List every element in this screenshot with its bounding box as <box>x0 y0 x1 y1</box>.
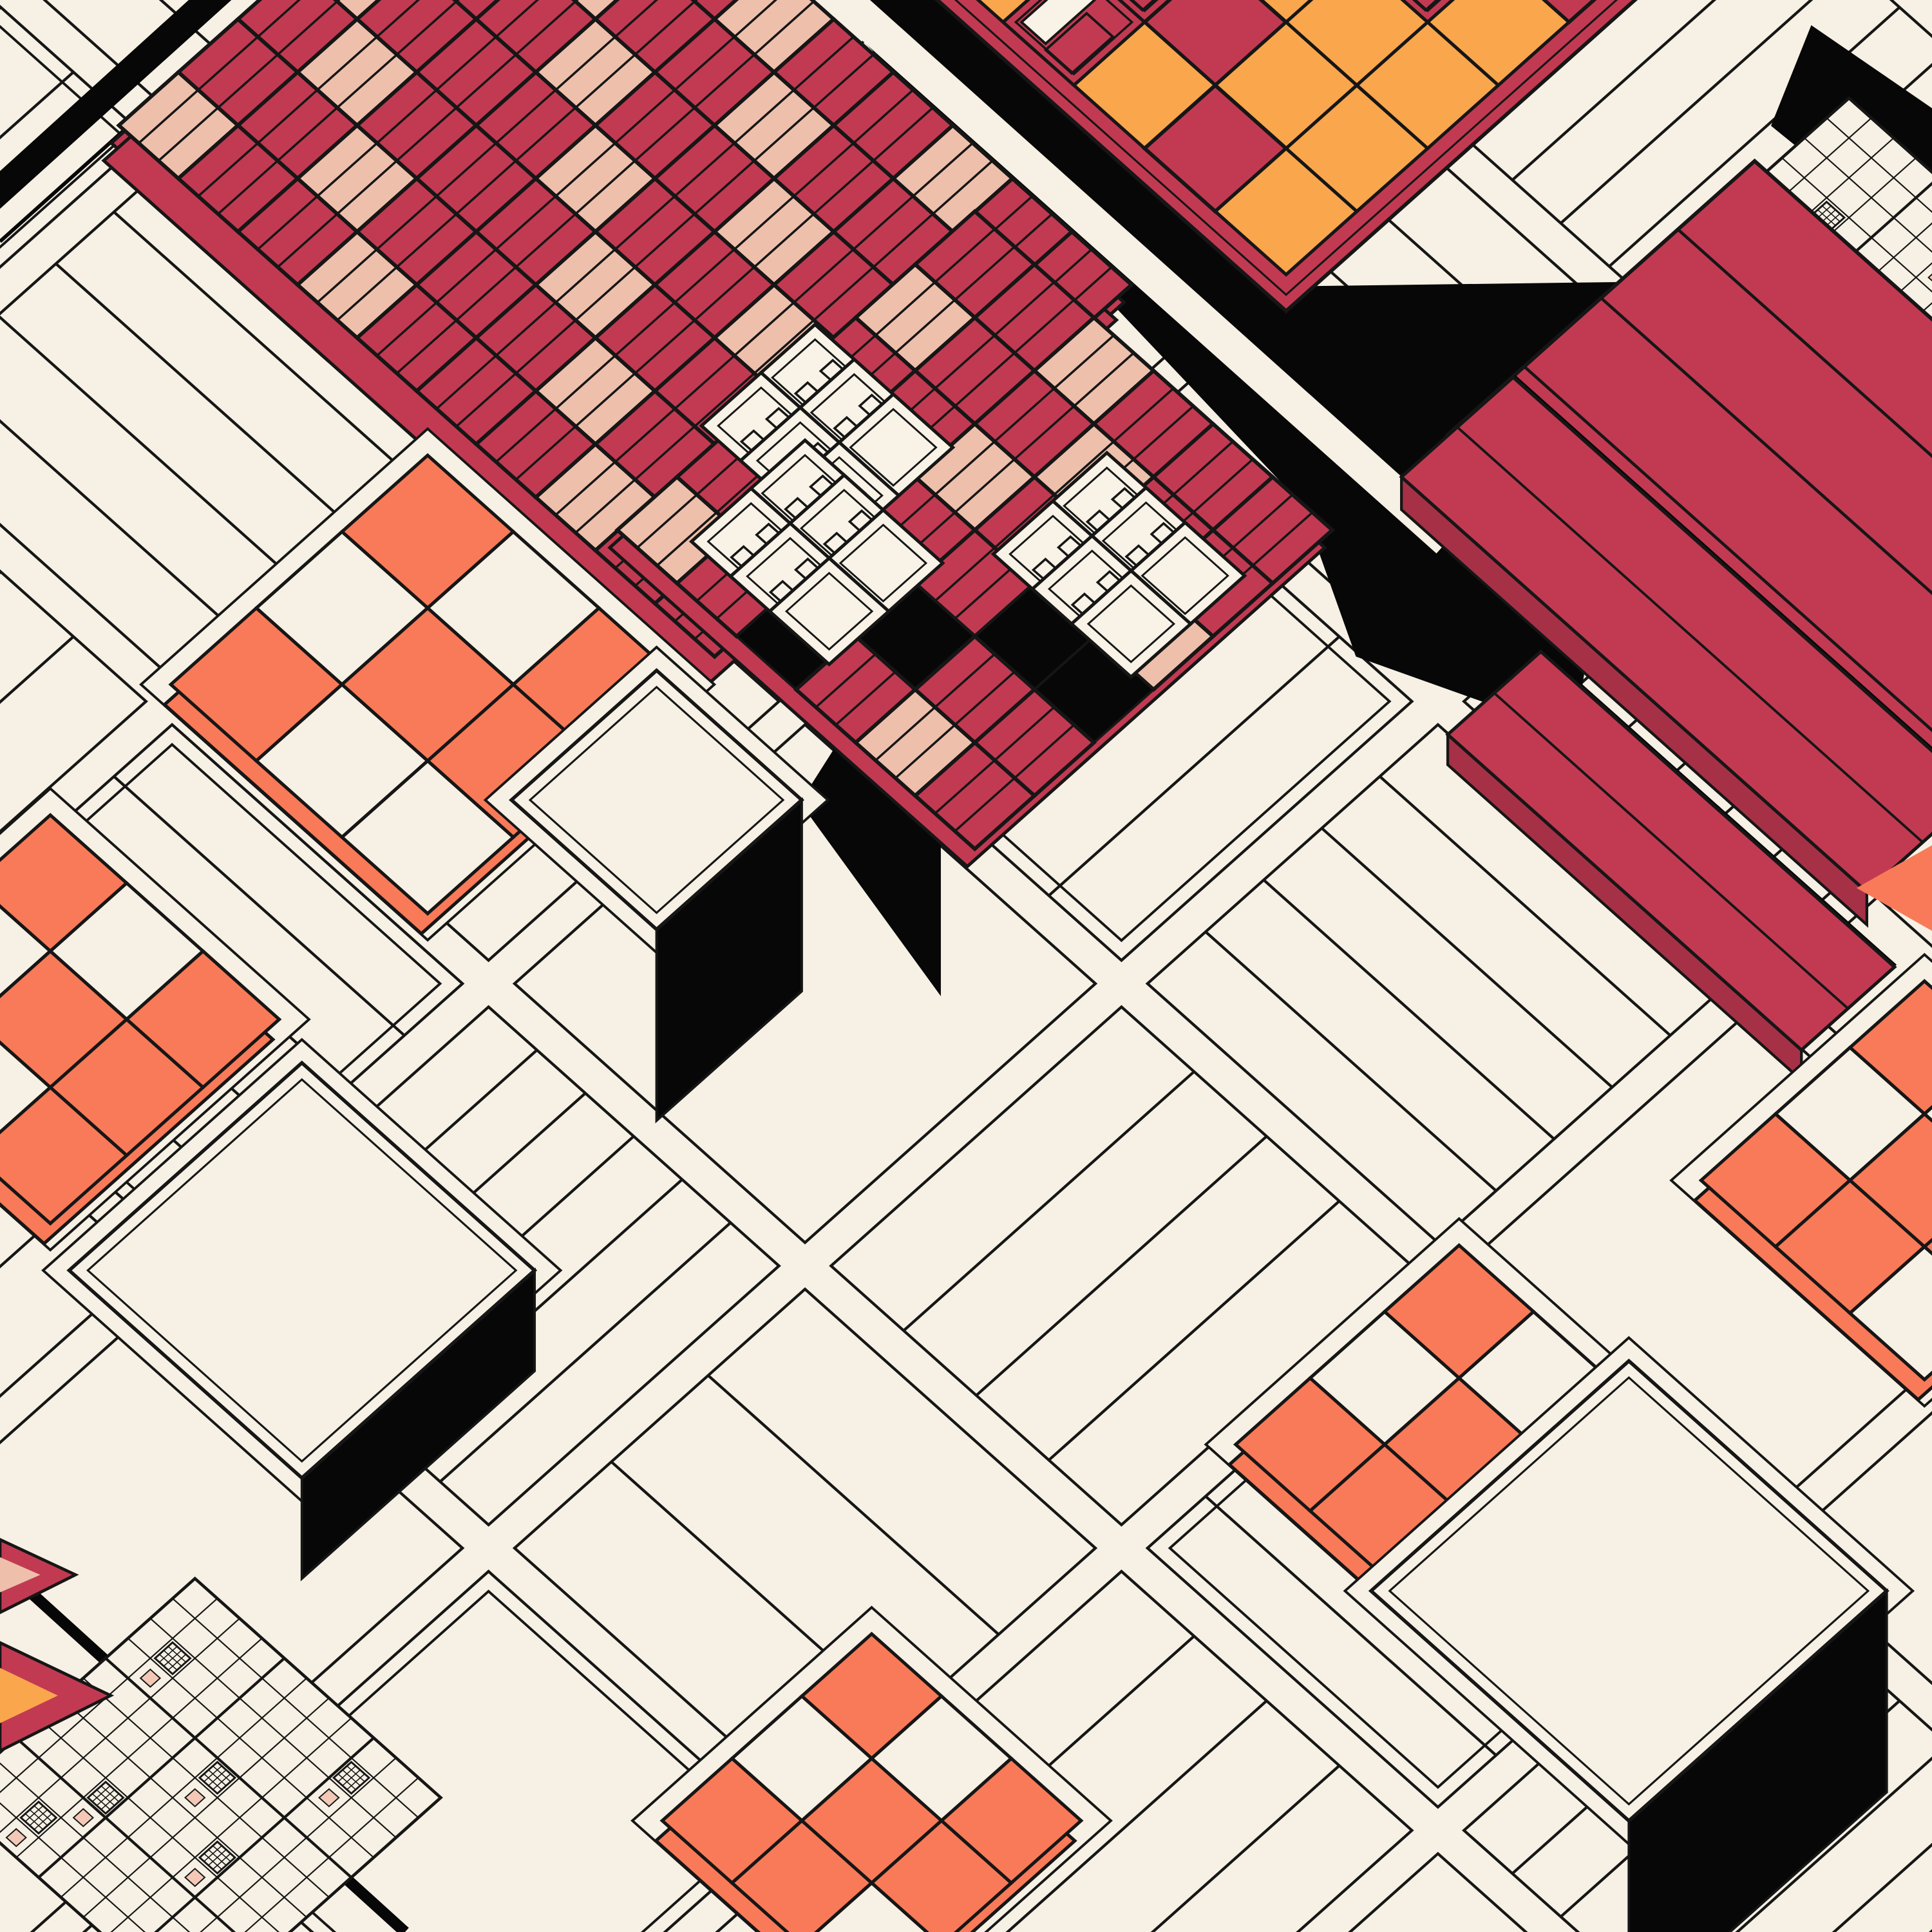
isometric-city-artwork <box>0 0 1932 1932</box>
artwork-frame <box>0 0 1932 1932</box>
